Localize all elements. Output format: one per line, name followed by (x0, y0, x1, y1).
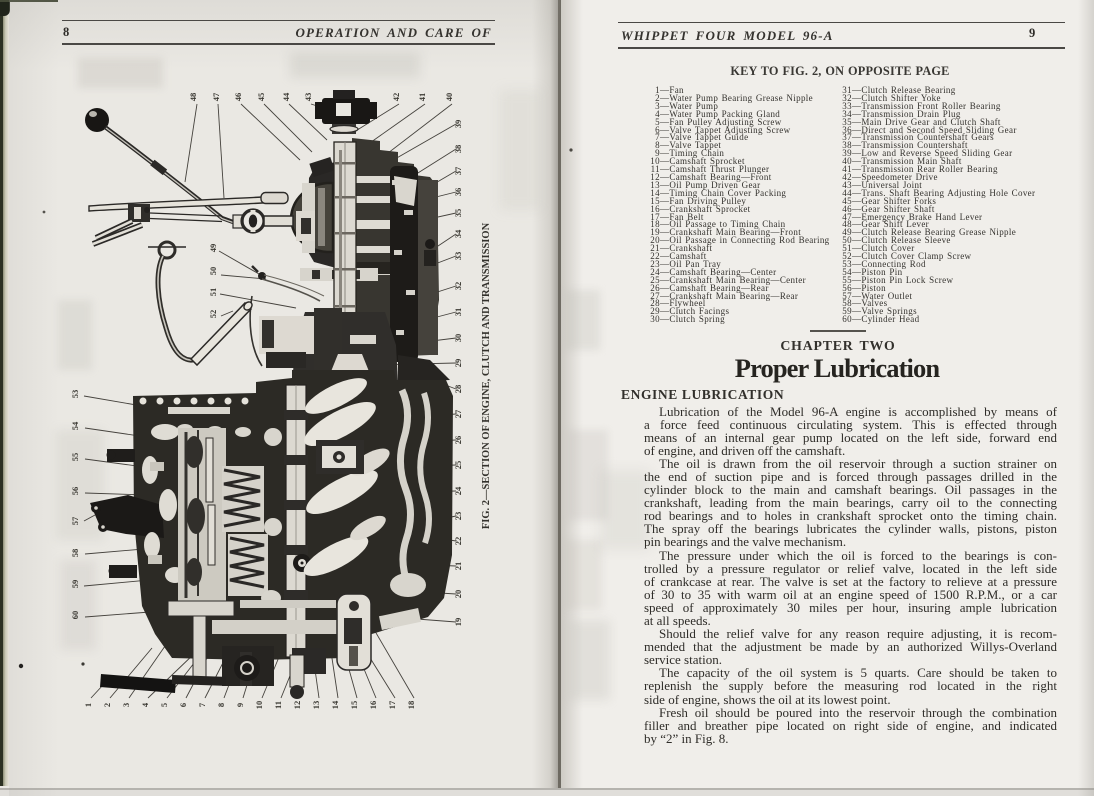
svg-text:FIG. 2—SECTION OF ENGINE, CLUT: FIG. 2—SECTION OF ENGINE, CLUTCH AND TRA… (481, 222, 492, 529)
svg-text:4: 4 (140, 702, 150, 707)
svg-text:50: 50 (208, 267, 218, 276)
svg-text:57: 57 (70, 516, 80, 525)
svg-text:22: 22 (453, 537, 463, 546)
svg-text:59: 59 (70, 580, 80, 589)
svg-text:41: 41 (417, 93, 427, 102)
svg-text:38: 38 (453, 145, 463, 154)
svg-text:45: 45 (256, 93, 266, 102)
svg-text:13: 13 (311, 701, 321, 710)
svg-text:15: 15 (349, 701, 359, 710)
svg-text:42: 42 (391, 93, 401, 102)
svg-text:32: 32 (453, 282, 463, 291)
svg-text:8: 8 (216, 703, 226, 707)
svg-text:49: 49 (208, 244, 218, 253)
svg-text:30: 30 (453, 334, 463, 343)
svg-text:56: 56 (70, 487, 80, 496)
svg-text:3: 3 (121, 703, 131, 707)
svg-text:5: 5 (159, 703, 169, 707)
svg-text:48: 48 (188, 93, 198, 102)
svg-text:21: 21 (453, 562, 463, 571)
svg-text:17: 17 (387, 700, 397, 709)
svg-text:12: 12 (292, 701, 302, 710)
svg-text:31: 31 (453, 308, 463, 317)
svg-text:43: 43 (303, 93, 313, 102)
svg-text:16: 16 (368, 701, 378, 710)
svg-text:36: 36 (453, 188, 463, 197)
svg-text:39: 39 (453, 120, 463, 129)
svg-text:33: 33 (453, 252, 463, 261)
svg-text:18: 18 (406, 701, 416, 710)
svg-text:58: 58 (70, 549, 80, 558)
svg-text:7: 7 (197, 702, 207, 707)
svg-text:10: 10 (254, 701, 264, 710)
svg-text:29: 29 (453, 359, 463, 368)
svg-text:6: 6 (178, 703, 188, 707)
svg-text:37: 37 (453, 166, 463, 175)
svg-text:40: 40 (444, 93, 454, 102)
svg-text:44: 44 (281, 92, 291, 101)
svg-text:23: 23 (453, 512, 463, 521)
svg-text:1: 1 (83, 703, 93, 707)
svg-text:52: 52 (208, 310, 218, 319)
svg-text:14: 14 (330, 700, 340, 709)
svg-text:25: 25 (453, 461, 463, 470)
svg-text:60: 60 (70, 611, 80, 620)
svg-text:46: 46 (233, 93, 243, 102)
svg-text:54: 54 (70, 421, 80, 430)
svg-text:26: 26 (453, 436, 463, 445)
svg-text:20: 20 (453, 590, 463, 599)
svg-text:27: 27 (453, 409, 463, 418)
svg-text:2: 2 (102, 703, 112, 707)
svg-text:35: 35 (453, 209, 463, 218)
svg-text:24: 24 (453, 486, 463, 495)
svg-text:55: 55 (70, 453, 80, 462)
svg-text:28: 28 (453, 385, 463, 394)
svg-text:47: 47 (211, 92, 221, 101)
svg-text:19: 19 (453, 618, 463, 627)
svg-text:34: 34 (453, 229, 463, 238)
svg-text:51: 51 (208, 288, 218, 297)
svg-text:11: 11 (273, 701, 283, 709)
svg-text:9: 9 (235, 703, 245, 707)
svg-text:53: 53 (70, 390, 80, 399)
